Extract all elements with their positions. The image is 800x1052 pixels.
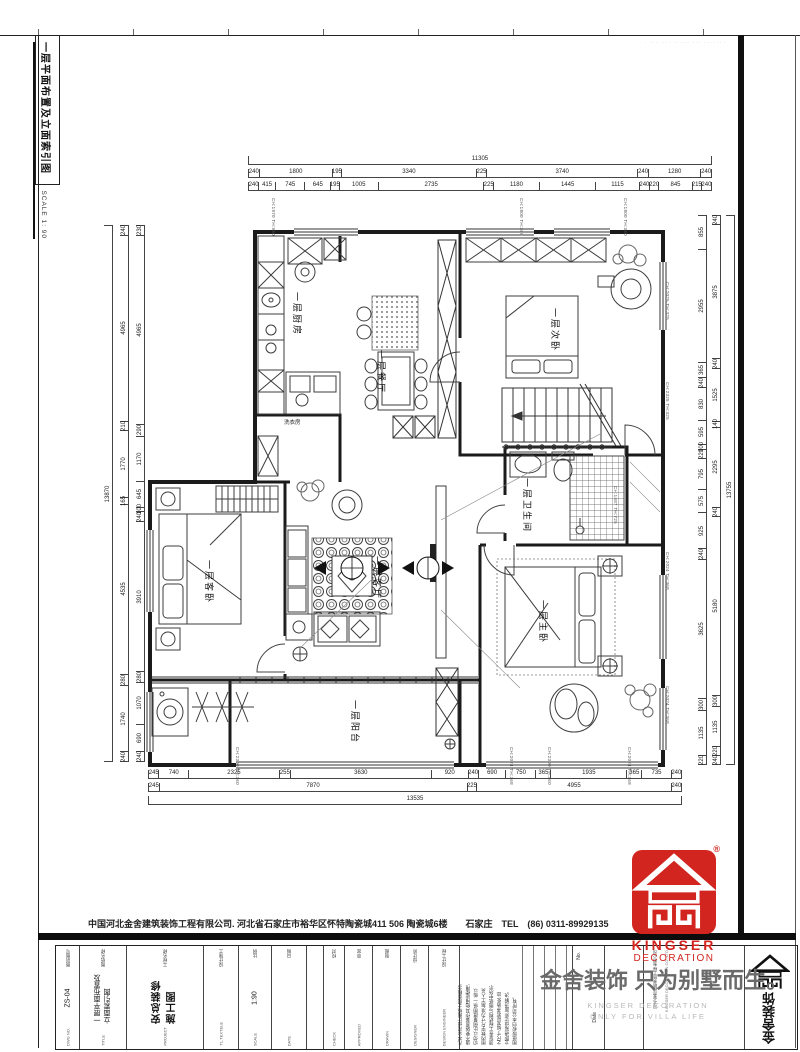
dim-segment: 245	[148, 783, 160, 791]
slogan-en-line2: ONLY FOR VILLA LIFE	[583, 1011, 713, 1022]
dim-segment: 195	[331, 182, 339, 190]
dim-segment: 4965	[120, 236, 128, 422]
dim-segment: 5180	[712, 517, 720, 696]
window-annotation: CH:2300 TH:360	[547, 747, 552, 785]
dim-segment: 240	[698, 378, 706, 388]
kingser-logo: ® KINGSER DECORATION	[626, 850, 722, 964]
dim-segment: 1180	[494, 182, 540, 190]
window-annotation: CH:2024 TH:368	[665, 552, 670, 590]
dim-chain-left-inner: 2304965290117064510024039102801070690240	[136, 225, 145, 762]
dim-segment: 195	[333, 169, 342, 177]
dim-segment: 13535	[148, 796, 682, 804]
title-block-col-check: 校对CHECK	[324, 946, 345, 1049]
dim-segment: 300	[698, 699, 706, 711]
dim-chain-right-total: 13755	[726, 215, 735, 765]
room-label-bath: 一层卫生间	[521, 478, 534, 533]
dim-segment: 3910	[136, 522, 144, 671]
dim-segment: 1135	[698, 711, 706, 755]
dim-segment: 750	[506, 770, 536, 778]
window-annotation: CH:1800 TH:360	[623, 198, 628, 236]
sheet-scale: SCALE 1: 90	[40, 190, 47, 239]
dim-segment: 1135	[712, 707, 720, 747]
window-annotation: CH:2325 TH:325	[665, 382, 670, 420]
logo-text-kingser: KINGSER	[626, 937, 722, 953]
dim-segment: 1070	[136, 683, 144, 725]
dim-segment: 3340	[342, 169, 477, 177]
title-block-col-tl-textele: 设计施工TL.TEXTELE	[204, 946, 239, 1049]
dim-segment: 4955	[477, 783, 671, 791]
title-block-col-title: 图纸名称一层平面布置及立面索引图TITLE	[80, 946, 127, 1049]
room-label-guest: 一层客卧	[203, 560, 216, 604]
dim-segment: 1935	[551, 770, 627, 778]
title-block-col-approved: 审定APPROVED	[345, 946, 373, 1049]
dim-segment: 1800	[260, 169, 333, 177]
room-label-kitchen: 一层厨房	[291, 292, 304, 336]
logo-divider	[744, 946, 745, 1049]
dim-segment: 1280	[649, 169, 701, 177]
dim-chain-left-total: 13870	[104, 225, 113, 762]
dim-segment: 240	[672, 783, 682, 791]
dim-segment: 225	[468, 783, 478, 791]
window-annotation: CH:2024 TH:368	[627, 747, 632, 785]
dim-segment: 845	[659, 182, 692, 190]
dim-segment: 3625	[698, 560, 706, 699]
dim-segment: 1005	[340, 182, 379, 190]
revision-no-label: No.	[576, 952, 582, 960]
dim-segment: 1525	[712, 369, 720, 422]
room-label-dining: 一层餐厅	[375, 350, 388, 394]
dim-segment: 220	[698, 756, 706, 765]
dim-chain-right-mid: 2403875240152514022952405180300113522024…	[712, 215, 721, 765]
dim-segment: 855	[698, 215, 706, 250]
dim-segment: 2325	[189, 770, 280, 778]
dim-segment: 415	[259, 182, 276, 190]
window-annotation: CH:1970 TH:950	[271, 198, 276, 236]
dim-segment: 240	[136, 752, 144, 762]
dim-segment: 165	[120, 498, 128, 505]
dim-segment: 4535	[120, 505, 128, 675]
dim-segment: 2295	[712, 428, 720, 508]
dim-segment: 4965	[136, 236, 144, 425]
window-annotation: CH:2024 TH:368	[665, 686, 670, 724]
dim-segment: 255	[280, 770, 291, 778]
logo-text-decoration: DECORATION	[626, 953, 722, 964]
dim-segment: 240	[712, 756, 720, 765]
kingser-logo-red-icon: ®	[632, 850, 716, 934]
dim-chain-left-mid: 2404965210177016545352801740240	[120, 225, 129, 762]
title-block-col-project: 工程名称安总装修施工图PROJECT	[127, 946, 204, 1049]
dim-chain-bottom-total: 13535	[148, 796, 682, 805]
dim-segment: 300	[712, 696, 720, 707]
dim-segment: 365	[536, 770, 551, 778]
dim-segment: 290	[136, 425, 144, 437]
top-watermark: · ·· · ··· · ·· ···· · ·· · ··· ·· ·	[645, 40, 726, 45]
dim-segment: 240	[469, 770, 479, 778]
dim-segment: 645	[305, 182, 331, 190]
company-address-line: 中国河北金舍建筑装饰工程有限公司. 河北省石家庄市裕华区怀特陶瓷城411 506…	[88, 917, 608, 930]
dim-segment: 1115	[596, 182, 640, 190]
dim-segment: 925	[698, 513, 706, 549]
dim-segment: 240	[638, 169, 649, 177]
slogan-watermark-en: KINGSER DECORATION ONLY FOR VILLA LIFE	[583, 1000, 713, 1023]
dim-segment: 575	[698, 490, 706, 513]
dim-segment: 13870	[104, 225, 112, 762]
sheet-title-rotated: 一层平面布置及立面索引图 SCALE 1: 90	[33, 42, 55, 239]
dim-segment: 220	[698, 450, 706, 459]
dim-segment: 365	[627, 770, 642, 778]
dim-segment: 210	[120, 422, 128, 431]
title-block-notes: 凡本公司设计图纸之创意概念, 请不要随意兼作其他用途使用, 切勿以比例量度图纸,…	[456, 950, 518, 1045]
registered-mark: ®	[713, 844, 720, 854]
dim-chain-top-total: 11305	[248, 156, 712, 165]
dim-segment: 2735	[379, 182, 484, 190]
dim-segment: 735	[642, 770, 671, 778]
dim-segment: 7870	[160, 783, 468, 791]
title-block-col-scale: 比例1:90SCALE	[239, 946, 272, 1049]
dim-chain-bottom-row2: 24578702254955240	[148, 783, 682, 792]
dim-segment: 1770	[120, 431, 128, 498]
dim-chain-top-row2: 2404157456451951005273522511801445111524…	[248, 182, 712, 191]
dim-segment: 230	[136, 225, 144, 236]
sheet-title: 一层平面布置及立面索引图	[39, 42, 50, 174]
dim-segment: 240	[712, 508, 720, 517]
dim-segment: 240	[120, 752, 128, 762]
brand-vertical-text: 金舍装饰	[760, 992, 779, 1044]
dim-segment: 240	[248, 169, 260, 177]
revision-table	[522, 946, 573, 1049]
dim-segment: 920	[432, 770, 469, 778]
room-label-bedroom2: 一层次卧	[549, 308, 562, 352]
room-label-master: 一层主卧	[537, 600, 550, 644]
dim-segment: 3740	[487, 169, 638, 177]
dim-segment: 740	[159, 770, 189, 778]
slogan-en-line1: KINGSER DECORATION	[583, 1000, 713, 1011]
dim-segment: 240	[712, 215, 720, 225]
stairs	[502, 384, 621, 449]
dim-segment: 240	[698, 549, 706, 559]
dim-segment: 365	[698, 363, 706, 378]
dim-segment: 225	[477, 169, 487, 177]
dim-segment: 240	[136, 512, 144, 522]
dim-segment: 830	[698, 388, 706, 421]
window-annotation: CH:2024 TH:368	[509, 747, 514, 785]
room-label-living: 一层客厅	[371, 556, 384, 600]
slogan-watermark: 金舍装饰 只为别墅而生。	[540, 963, 788, 995]
dim-segment: 280	[120, 675, 128, 686]
window-annotation: CH:1687 TH:725	[613, 486, 618, 524]
dim-segment: 240	[120, 225, 128, 236]
title-block-spacer	[307, 946, 324, 1049]
window-annotation: CH:2025 TH:325	[665, 282, 670, 320]
dim-segment: 745	[276, 182, 305, 190]
dim-segment: 3630	[291, 770, 432, 778]
dim-segment: 220	[650, 182, 659, 190]
dim-segment: 13755	[726, 215, 734, 765]
dim-chain-bottom-row1: 2457402325255363092024069075036519353657…	[148, 770, 682, 779]
dim-segment: 795	[698, 459, 706, 490]
room-label-laundry: 洗衣房	[284, 418, 301, 426]
dim-segment: 240	[672, 770, 682, 778]
dim-segment: 1740	[120, 686, 128, 752]
dim-segment: 240	[701, 169, 712, 177]
title-block-col-designer: 设计师DESIGNER	[401, 946, 429, 1049]
title-block-col-dwg-no-: 图别图号ZS-04DWG NO.	[56, 946, 80, 1049]
title-block-col-date: 日期DATE	[272, 946, 307, 1049]
window-annotation: CH:2300 TH:360	[235, 747, 240, 785]
dim-segment: 240	[248, 182, 259, 190]
frame-heavy-bar	[738, 35, 744, 934]
dim-segment: 245	[148, 770, 159, 778]
dim-segment: 2955	[698, 250, 706, 364]
dim-segment: 240	[712, 359, 720, 368]
furniture	[152, 236, 660, 749]
dim-segment: 280	[136, 672, 144, 684]
dim-segment: 240	[702, 182, 712, 190]
room-label-balcony: 一层阳台	[349, 700, 362, 744]
window-annotation: CH:1800 TH:360	[519, 198, 524, 236]
dim-segment: 3875	[712, 225, 720, 359]
dim-segment: 690	[136, 725, 144, 752]
dim-segment: 225	[484, 182, 494, 190]
dim-segment: 1445	[540, 182, 596, 190]
dim-segment: 690	[479, 770, 507, 778]
dim-chain-top-row1: 2401800195334022537402401280240	[248, 169, 712, 178]
dim-segment: 11305	[248, 156, 712, 164]
title-block-col-drawn: 制图DRAWN	[373, 946, 401, 1049]
title-block-columns: 图别图号ZS-04DWG NO.图纸名称一层平面布置及立面索引图TITLE工程名…	[56, 946, 460, 1049]
dim-chain-right-inner: 8552955365240830595100220795575925240362…	[698, 215, 707, 765]
dim-segment: 1170	[136, 437, 144, 482]
